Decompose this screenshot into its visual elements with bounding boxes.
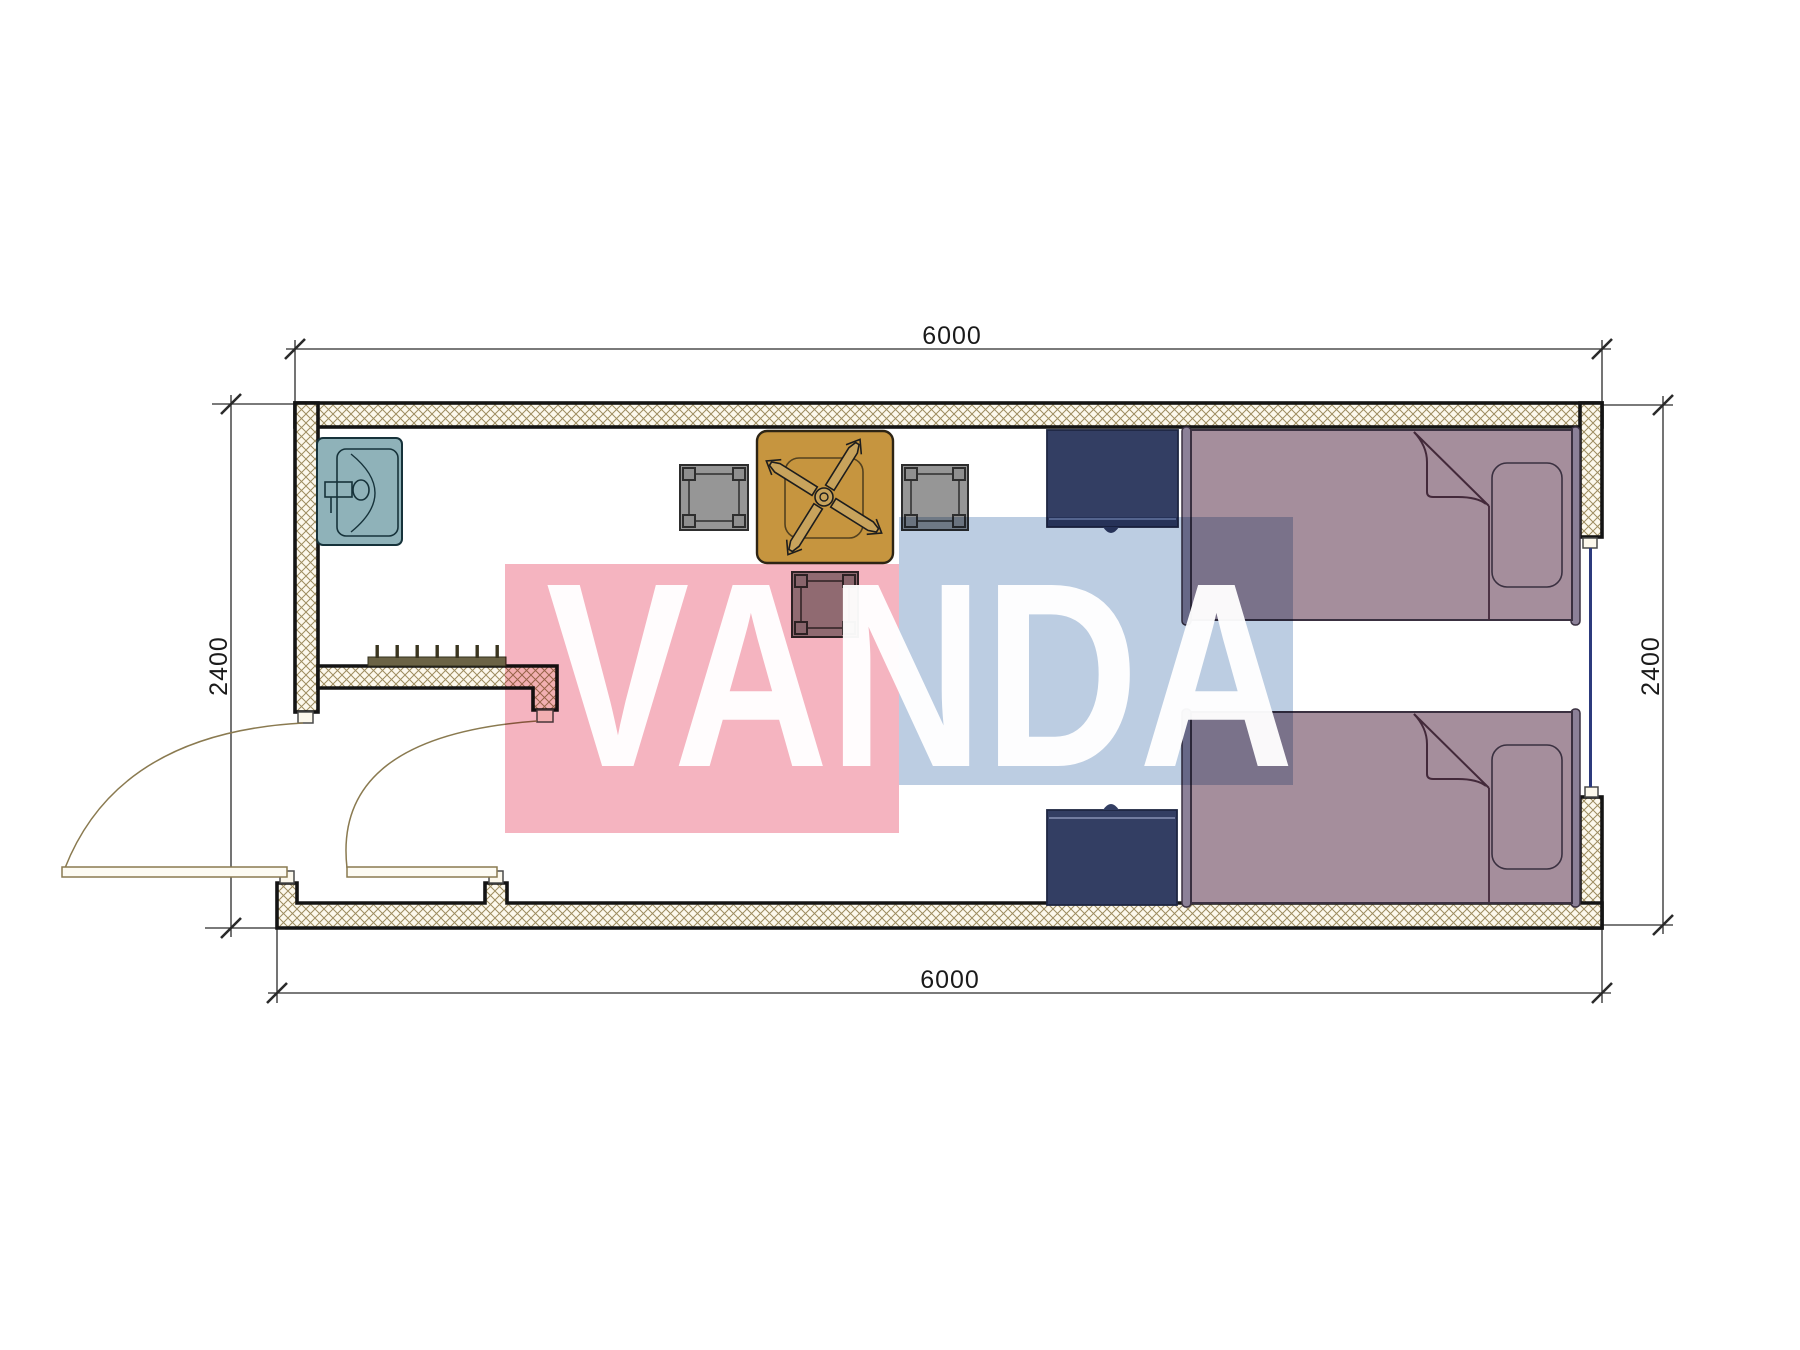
jamb-window-bottom	[1585, 787, 1598, 797]
dimension-label-right: 2400	[1637, 636, 1665, 696]
dimension-label-top: 6000	[922, 322, 982, 350]
floor-plan-canvas: 6000 6000 2400 2400	[0, 0, 1800, 1350]
wall-left	[295, 403, 318, 712]
wall-right-upper	[1580, 403, 1602, 537]
window-icon	[1589, 548, 1592, 787]
jamb-window-top	[1583, 538, 1597, 548]
sink-icon	[317, 438, 402, 545]
dimension-label-left: 2400	[205, 636, 233, 696]
watermark-brand-text: VANDA	[546, 528, 1294, 822]
door-swing-icon	[65, 723, 303, 868]
jamb-left-wall	[298, 712, 313, 723]
door-leaf	[347, 867, 497, 877]
wall-top	[295, 403, 1602, 427]
floor-plan-page: 6000 6000 2400 2400	[0, 0, 1800, 1350]
chair-left	[680, 465, 748, 530]
watermark: VANDA	[505, 517, 1294, 833]
coat-hook-rail-icon	[368, 645, 506, 666]
door-leaf	[62, 867, 287, 877]
dimension-label-bottom: 6000	[920, 966, 980, 994]
door-left	[62, 723, 303, 877]
